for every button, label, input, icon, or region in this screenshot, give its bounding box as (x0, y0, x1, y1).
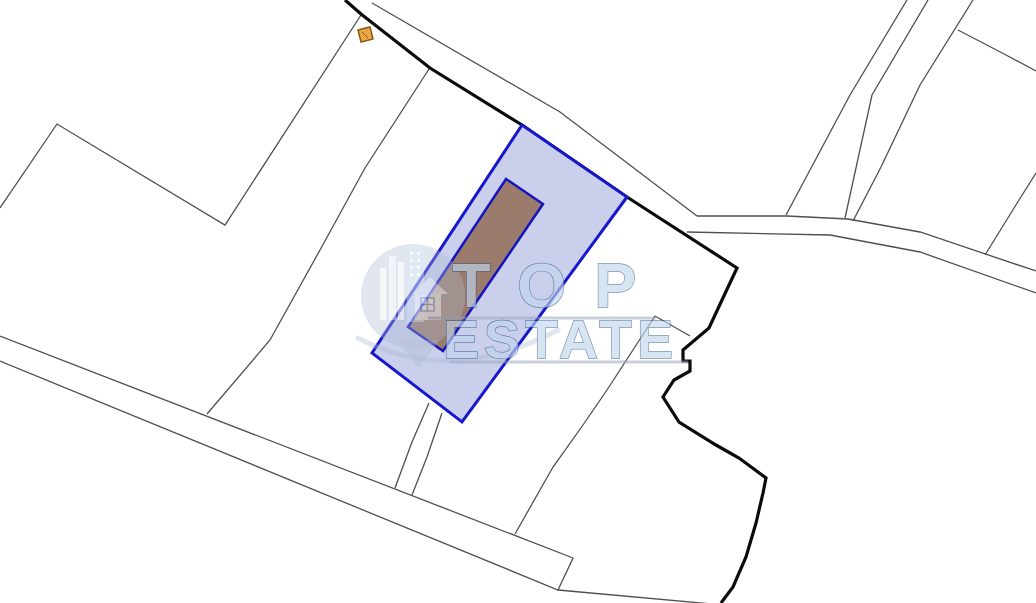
cadastral-map-page: TOP ESTATE (0, 0, 1036, 603)
lane-left-edge (395, 403, 429, 488)
road-northeast-left-edge (786, 0, 907, 215)
road-south-lower-edge (0, 361, 712, 603)
path-east-upper-edge (697, 216, 1036, 271)
boundary-far-east (985, 173, 1036, 255)
boundary-east-branch (958, 30, 1036, 71)
small-outbuilding-layer (358, 27, 373, 42)
road-northeast-right-edge (845, 0, 928, 218)
watermark: TOP ESTATE (358, 244, 688, 369)
small-outbuilding (358, 27, 373, 42)
path-east-lower-edge (687, 232, 1036, 293)
cadastral-map: TOP ESTATE (0, 0, 1036, 603)
watermark-brand-estate: ESTATE (443, 309, 678, 369)
boundary-northeast-parallel (853, 0, 973, 221)
lane-right-edge (412, 413, 442, 495)
boundary-west-peak (0, 15, 361, 225)
